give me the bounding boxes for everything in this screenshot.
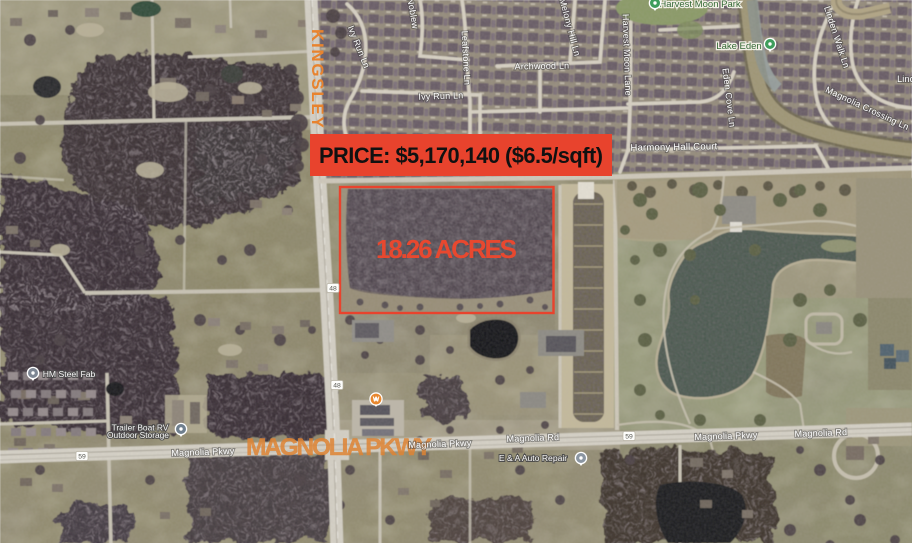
svg-text:Archwood Ln: Archwood Ln — [514, 61, 569, 72]
svg-text:Magnolia Rd: Magnolia Rd — [506, 432, 559, 444]
svg-text:Lind: Lind — [897, 74, 912, 84]
svg-text:W: W — [373, 397, 380, 404]
svg-text:Harvest Moon Park: Harvest Moon Park — [659, 0, 741, 10]
svg-text:48: 48 — [333, 383, 341, 390]
svg-text:Lake Eden: Lake Eden — [716, 41, 761, 52]
svg-text:E & A Auto Repair: E & A Auto Repair — [499, 453, 567, 463]
svg-text:Outdoor Storage: Outdoor Storage — [107, 430, 169, 440]
svg-text:PRICE: $5,170,140 ($6.5/sqft): PRICE: $5,170,140 ($6.5/sqft) — [319, 143, 603, 168]
svg-text:59: 59 — [78, 454, 86, 461]
svg-text:MAGNOLIA PKWY: MAGNOLIA PKWY — [246, 434, 432, 461]
svg-text:18.26 ACRES: 18.26 ACRES — [376, 234, 517, 264]
svg-text:48: 48 — [329, 286, 337, 293]
svg-text:HM Steel Fab: HM Steel Fab — [43, 369, 96, 379]
svg-text:Harmony Hall Court: Harmony Hall Court — [630, 141, 717, 154]
svg-text:Magnolia Rd: Magnolia Rd — [794, 427, 847, 439]
svg-text:KINGSLEY: KINGSLEY — [308, 29, 327, 130]
svg-text:59: 59 — [625, 434, 633, 441]
svg-text:Ivy Run Ln: Ivy Run Ln — [418, 90, 463, 102]
